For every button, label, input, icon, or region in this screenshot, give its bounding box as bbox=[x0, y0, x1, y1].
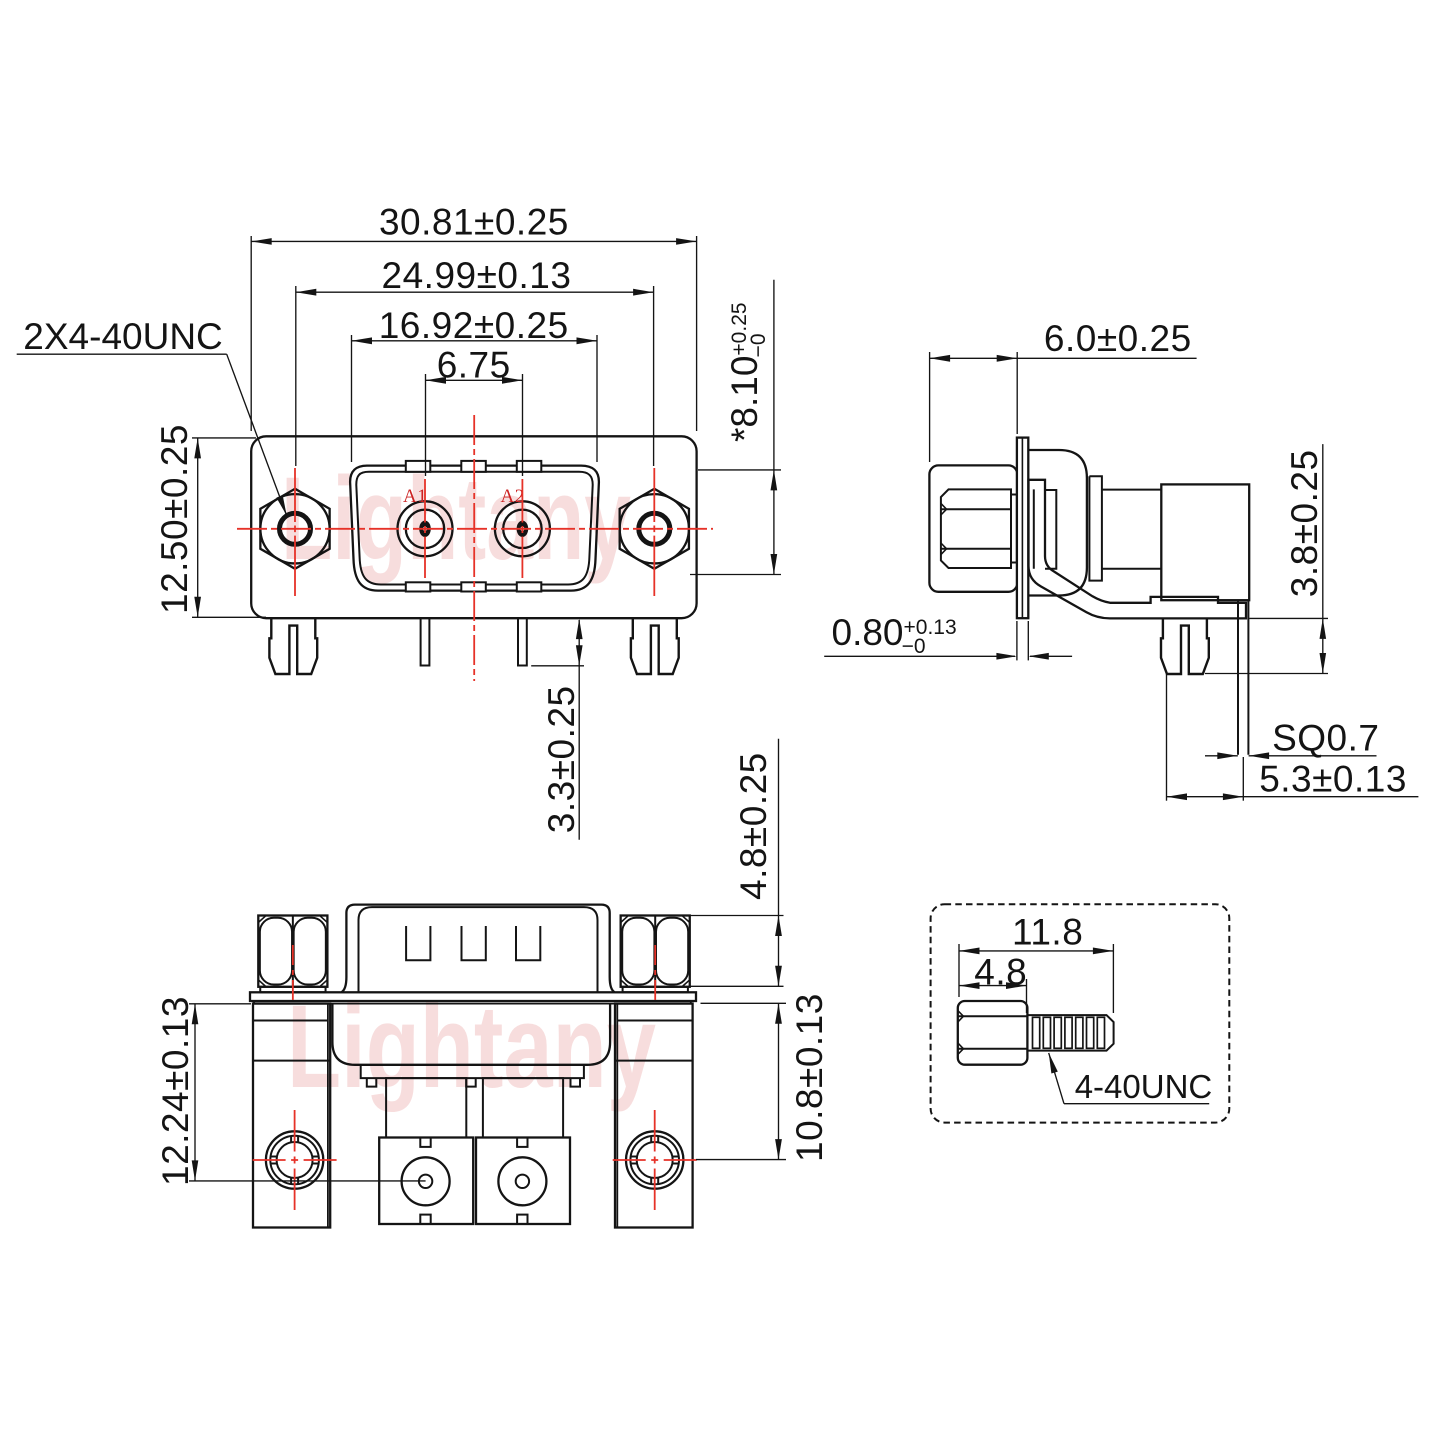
svg-text:A1: A1 bbox=[403, 486, 427, 507]
svg-text:16.92±0.25: 16.92±0.25 bbox=[379, 305, 569, 346]
svg-text:30.81±0.25: 30.81±0.25 bbox=[379, 201, 569, 242]
svg-text:4.8±0.25: 4.8±0.25 bbox=[733, 752, 774, 900]
svg-text:A2: A2 bbox=[501, 486, 525, 507]
svg-text:6.0±0.25: 6.0±0.25 bbox=[1044, 318, 1192, 359]
svg-text:24.99±0.13: 24.99±0.13 bbox=[382, 255, 572, 296]
svg-text:4-40UNC: 4-40UNC bbox=[1075, 1068, 1213, 1105]
svg-text:6.75: 6.75 bbox=[437, 345, 511, 386]
svg-text:2X4-40UNC: 2X4-40UNC bbox=[23, 316, 222, 357]
svg-text:3.3±0.25: 3.3±0.25 bbox=[541, 685, 582, 833]
svg-text:12.24±0.13: 12.24±0.13 bbox=[155, 996, 196, 1186]
svg-text:4.8: 4.8 bbox=[974, 952, 1027, 993]
svg-text:0.80+0.13−0: 0.80+0.13−0 bbox=[832, 612, 957, 658]
svg-text:5.3±0.13: 5.3±0.13 bbox=[1259, 758, 1407, 799]
svg-text:12.50±0.25: 12.50±0.25 bbox=[154, 424, 195, 614]
svg-text:10.8±0.13: 10.8±0.13 bbox=[789, 993, 830, 1162]
svg-text:SQ0.7: SQ0.7 bbox=[1272, 717, 1379, 758]
svg-text:*8.10+0.25−0: *8.10+0.25−0 bbox=[724, 302, 770, 442]
svg-text:3.8±0.25: 3.8±0.25 bbox=[1284, 449, 1325, 597]
svg-text:11.8: 11.8 bbox=[1012, 911, 1083, 952]
